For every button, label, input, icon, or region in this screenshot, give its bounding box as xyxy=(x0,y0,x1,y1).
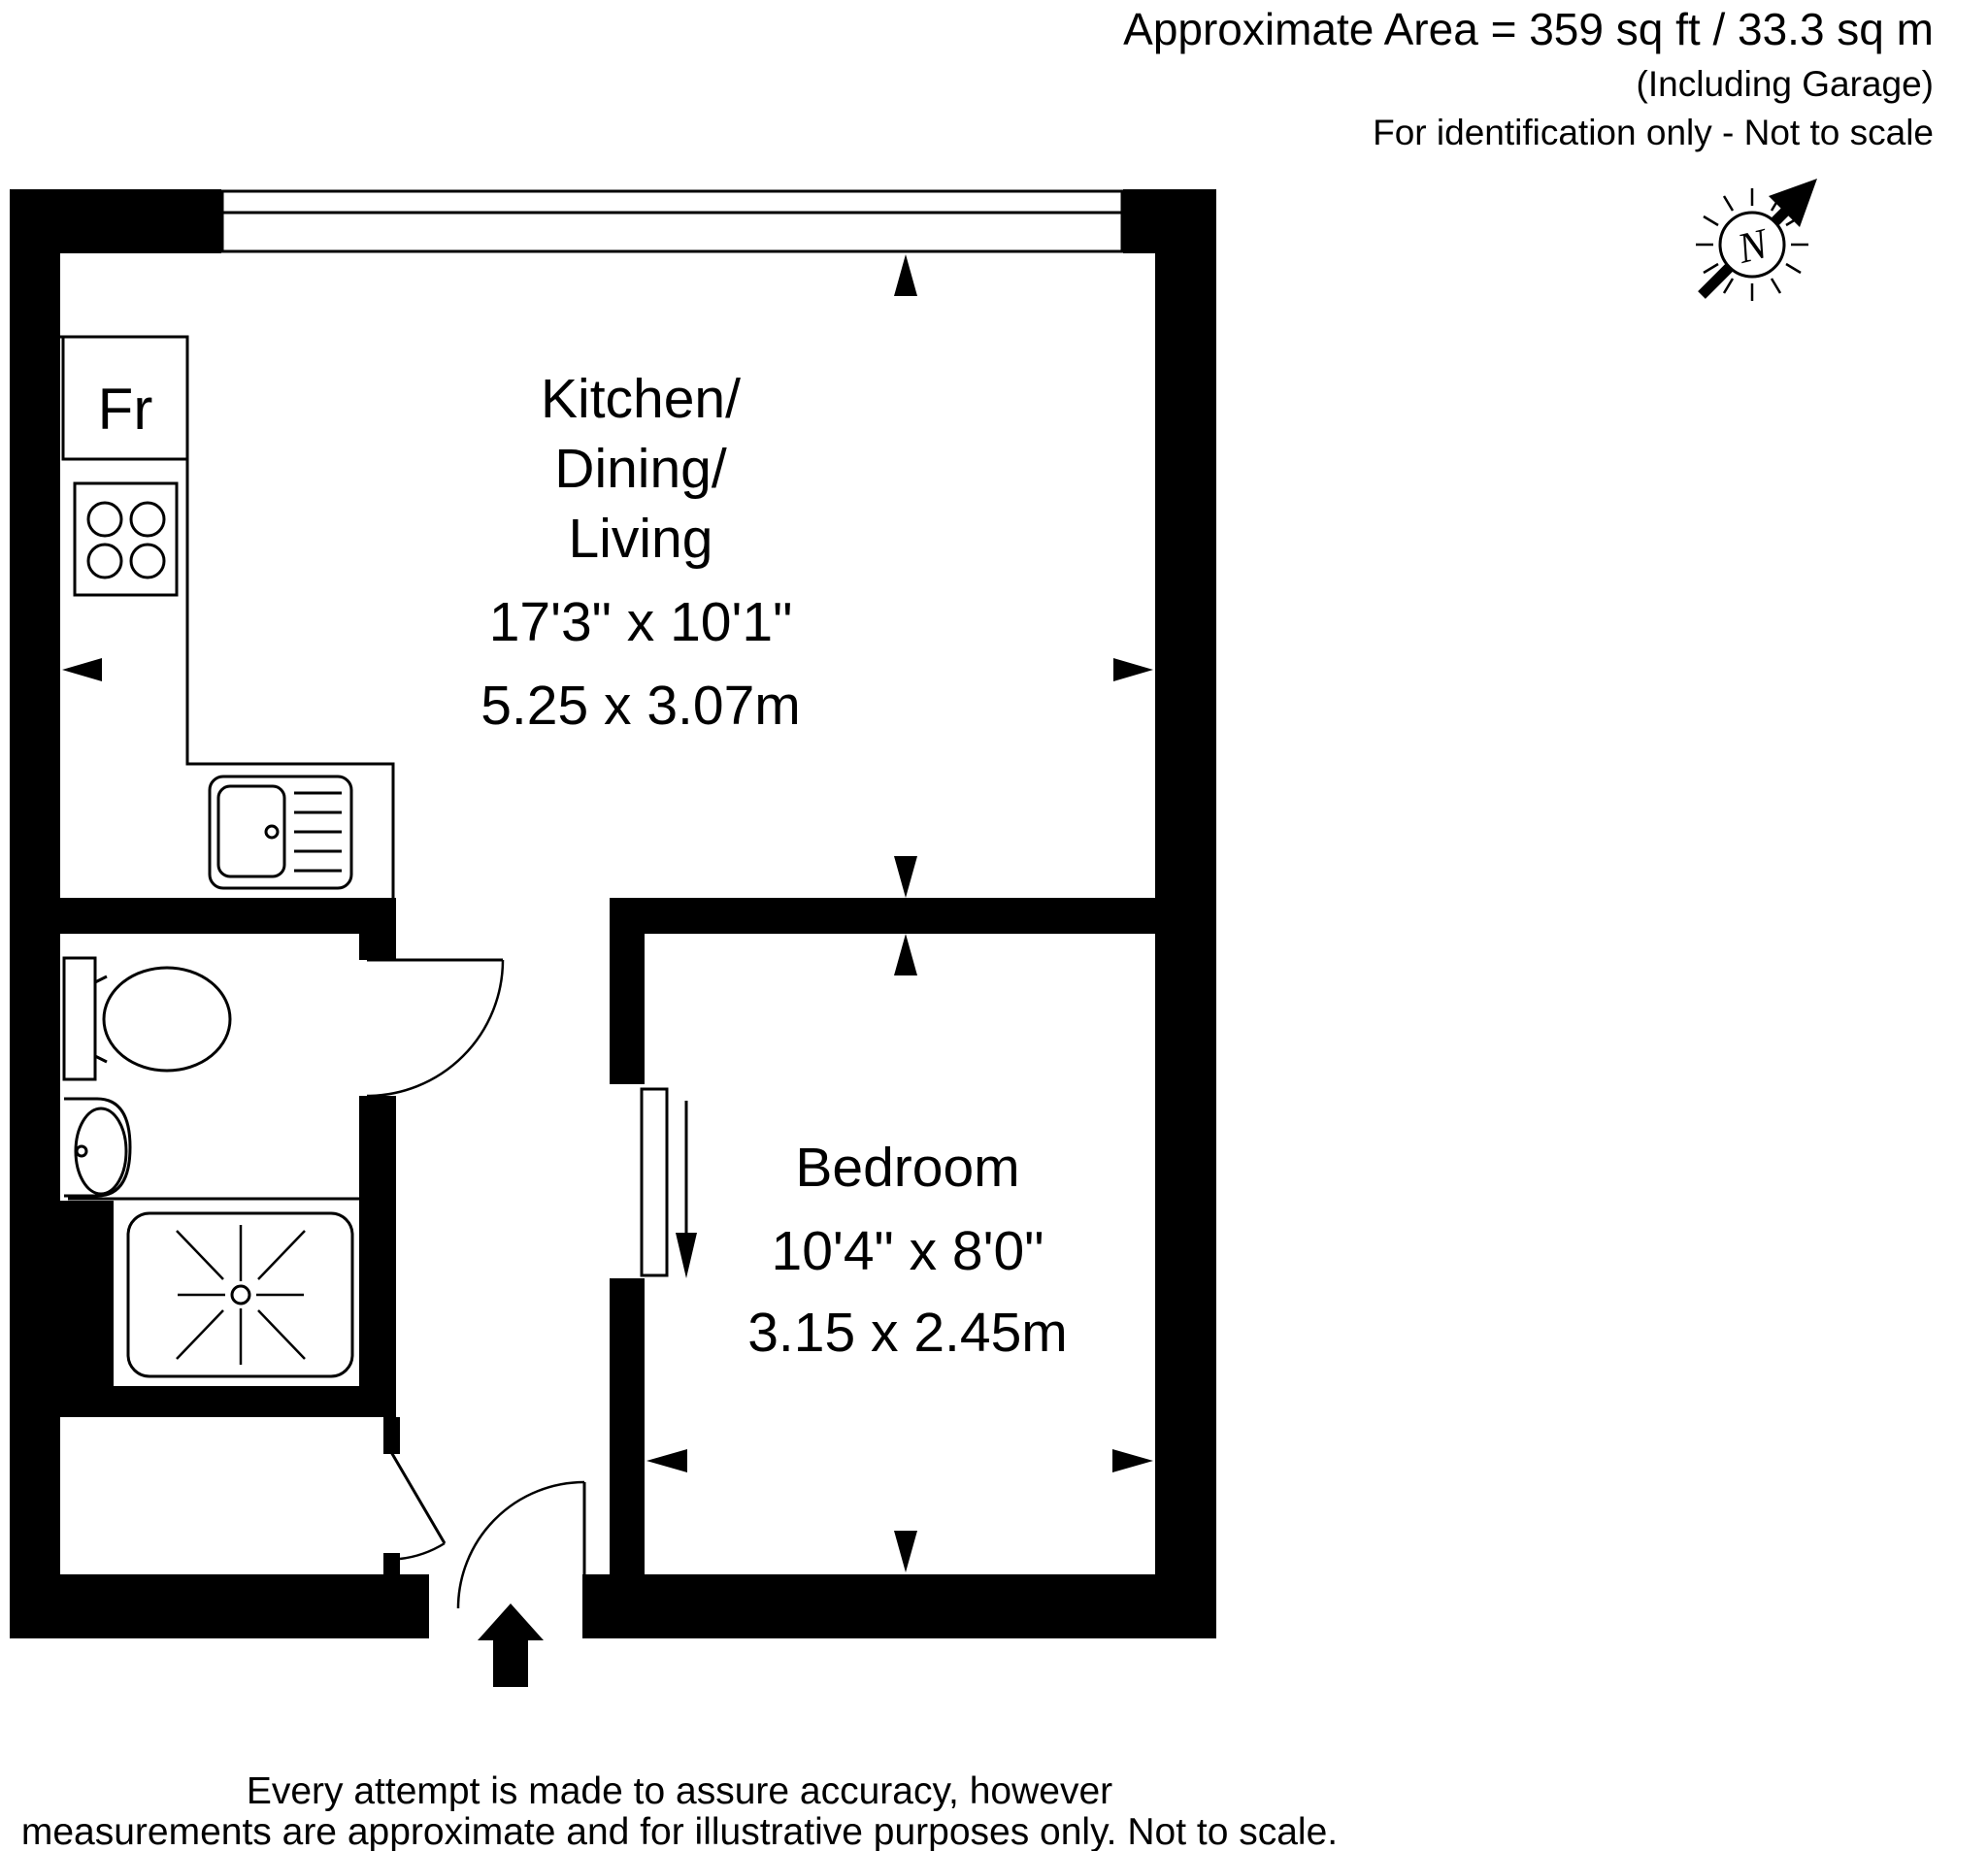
north-arrow-icon: N xyxy=(1696,179,1817,301)
wall-hall-upper xyxy=(359,898,396,960)
wall-closet-jamb-bottom xyxy=(383,1553,400,1574)
floor-plan-page: Approximate Area = 359 sq ft / 33.3 sq m… xyxy=(0,0,1988,1851)
dimension-arrow-down-icon xyxy=(894,856,917,898)
entrance-door xyxy=(458,1482,584,1608)
toilet-icon xyxy=(64,958,230,1079)
kitchen-size-metric: 5.25 x 3.07m xyxy=(480,675,801,737)
wall-bedroom-left-upper xyxy=(610,934,645,1084)
kitchen-size-imperial: 17'3" x 10'1" xyxy=(489,591,793,653)
wall-bathroom-bottom xyxy=(60,1386,396,1417)
dimension-arrow-left-icon xyxy=(62,658,102,681)
dimension-arrow-right-icon xyxy=(1113,658,1153,681)
window xyxy=(221,189,1123,253)
identification-disclaimer-text: For identification only - Not to scale xyxy=(1373,113,1934,152)
wall-left xyxy=(10,189,60,1638)
hob-icon xyxy=(75,483,177,595)
wall-hall-lower xyxy=(359,1096,396,1417)
fridge: Fr xyxy=(63,337,187,459)
dimension-arrow-up-icon xyxy=(894,934,917,975)
dimension-arrow-right-icon xyxy=(1112,1449,1153,1472)
kitchen-name-line1: Kitchen/ xyxy=(541,368,741,430)
bedroom-name: Bedroom xyxy=(795,1137,1019,1199)
bedroom-size-metric: 3.15 x 2.45m xyxy=(747,1302,1068,1364)
approximate-area-text: Approximate Area = 359 sq ft / 33.3 sq m xyxy=(1123,4,1934,54)
dimension-arrow-down-icon xyxy=(894,1531,917,1572)
kitchen-room-label: Kitchen/ Dining/ Living 17'3" x 10'1" 5.… xyxy=(480,368,801,737)
bedroom-room-label: Bedroom 10'4" x 8'0" 3.15 x 2.45m xyxy=(747,1137,1068,1364)
dimension-arrow-left-icon xyxy=(646,1449,687,1472)
dimension-arrow-up-icon xyxy=(894,254,917,296)
kitchen-name-line2: Dining/ xyxy=(554,438,727,500)
footer-disclaimer-line2: measurements are approximate and for ill… xyxy=(21,1811,1338,1851)
kitchen-sink-icon xyxy=(210,777,351,888)
fridge-label: Fr xyxy=(98,377,153,442)
wall-top-left xyxy=(10,189,221,253)
wall-bedroom-left-lower xyxy=(610,1278,645,1638)
including-garage-text: (Including Garage) xyxy=(1637,64,1934,104)
closet-door xyxy=(391,1452,445,1559)
wall-kitchen-bathroom xyxy=(60,898,396,934)
entrance-arrow-icon xyxy=(478,1603,544,1687)
bathroom-door xyxy=(367,960,503,1096)
wall-bedroom-top xyxy=(610,898,1216,934)
kitchen-name-line3: Living xyxy=(569,508,713,570)
wall-bottom-left xyxy=(10,1574,429,1638)
wall-shower-pier xyxy=(60,1201,114,1386)
bedroom-sliding-door xyxy=(642,1089,697,1278)
wall-bottom-right xyxy=(582,1574,1216,1638)
footer-disclaimer-line1: Every attempt is made to assure accuracy… xyxy=(247,1770,1112,1812)
wash-basin-icon xyxy=(64,1099,130,1196)
bedroom-size-imperial: 10'4" x 8'0" xyxy=(772,1220,1044,1282)
wall-closet-jamb-top xyxy=(383,1417,400,1454)
